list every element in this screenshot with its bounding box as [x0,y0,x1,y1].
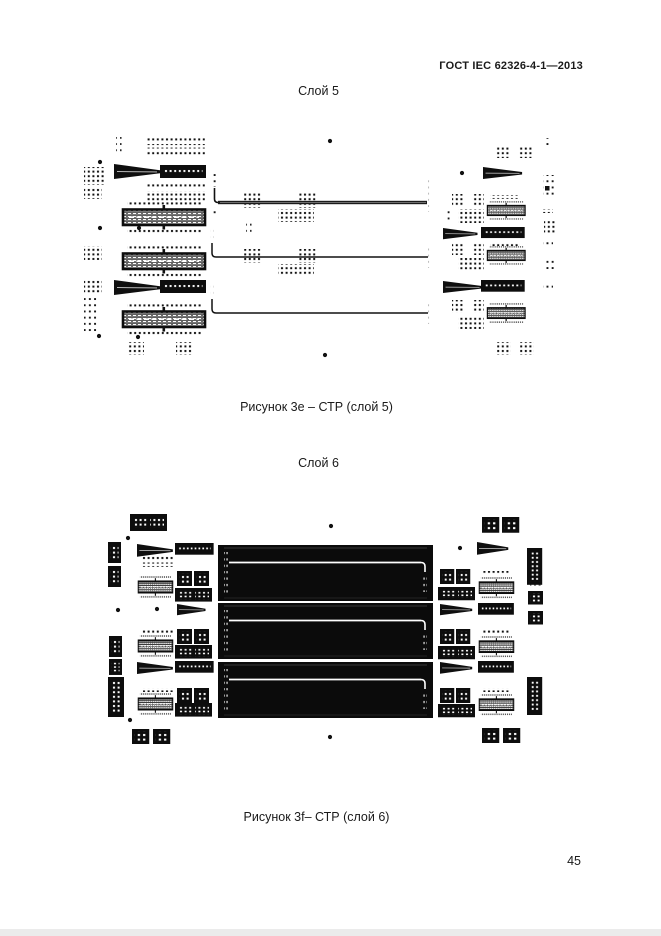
inverted-dot-box [194,629,209,644]
test-coupon [487,246,525,265]
dotted-bar [175,661,214,673]
inverted-dot-block [438,704,475,717]
inverted-dot-box [440,629,454,644]
inverted-dot-box [482,517,499,533]
figure-3e-caption: Рисунок 3e – СТР (слой 5) [0,400,647,414]
taper-wedge [440,662,472,674]
inverted-dot-box [528,611,543,625]
test-coupon [479,577,513,598]
inverted-dot-box [177,688,192,703]
inverted-dot-box [132,729,149,744]
inverted-dot-block [438,587,475,600]
test-cluster-left [108,514,214,744]
test-coupon [479,636,513,657]
pcb-layer-5-drawing [75,130,565,370]
taper-wedge [114,164,160,179]
dotted-bar [478,661,514,673]
inverted-dot-block [175,703,212,717]
inverted-dot-box [503,728,520,743]
taper-wedge [137,662,173,674]
pcb-layer-6-drawing [75,505,565,755]
inverted-dot-box [456,629,470,644]
inverted-dot-box [528,591,543,605]
test-coupon [487,303,525,323]
test-coupon [138,576,172,598]
inverted-dot-block [438,646,475,659]
test-coupon [138,635,172,657]
test-cluster-left [84,137,316,355]
figure-3f-pcb-layer-6 [75,505,565,755]
inverted-dot-block [130,514,167,531]
ground-plane-block [218,662,433,718]
tall-dot-strip [527,548,542,585]
taper-wedge [443,281,482,293]
test-coupon [123,304,205,335]
inverted-dot-box [194,571,209,586]
inverted-dot-box [440,688,454,703]
taper-wedge [443,228,478,239]
inverted-dot-box [177,571,192,586]
dotted-bar [160,165,206,178]
dot-strip [109,636,122,657]
page-number: 45 [567,854,581,868]
inverted-dot-box [456,688,470,703]
dotted-bar [175,543,214,555]
dotted-bar [481,227,525,238]
taper-wedge [177,604,206,615]
test-cluster-right [438,517,543,743]
standard-designation: ГОСТ IEC 62326-4-1—2013 [439,60,583,72]
figure-3e-pcb-layer-5 [75,130,565,370]
taper-wedge [137,544,173,557]
taper-wedge [114,280,160,295]
taper-wedge [440,604,472,615]
inverted-dot-box [502,517,519,533]
dot-strip [109,659,122,675]
test-coupon [123,246,205,277]
inverted-dot-box [177,629,192,644]
dot-strip [108,542,121,563]
ground-plane-block [218,603,433,659]
dotted-bar [160,280,206,293]
tall-dot-strip [527,677,542,715]
layer-5-title: Слой 5 [0,84,649,98]
dotted-bar [478,603,514,615]
ground-plane-block [218,545,433,601]
figure-3f-caption: Рисунок 3f– СТР (слой 6) [0,810,647,824]
dot-strip [108,566,121,587]
ground-plane-blocks [218,545,433,718]
taper-wedge [483,167,522,179]
inverted-dot-box [482,728,499,743]
inverted-dot-block [175,588,212,602]
signal-traces [211,172,432,324]
inverted-dot-box [456,569,470,584]
inverted-dot-box [440,569,454,584]
dotted-bar [481,280,525,292]
test-cluster-right [443,138,556,355]
layer-6-title: Слой 6 [0,456,649,470]
taper-wedge [477,542,508,555]
test-coupon [479,694,513,715]
test-coupon [138,693,172,715]
inverted-dot-block [175,645,212,659]
document-page: ГОСТ IEC 62326-4-1—2013 Слой 5 [0,0,661,936]
test-coupon [487,201,525,220]
tall-dot-strip [108,677,124,717]
scan-edge-shadow [0,929,661,936]
inverted-dot-box [194,688,209,703]
inverted-dot-box [153,729,170,744]
test-coupon [123,202,205,233]
